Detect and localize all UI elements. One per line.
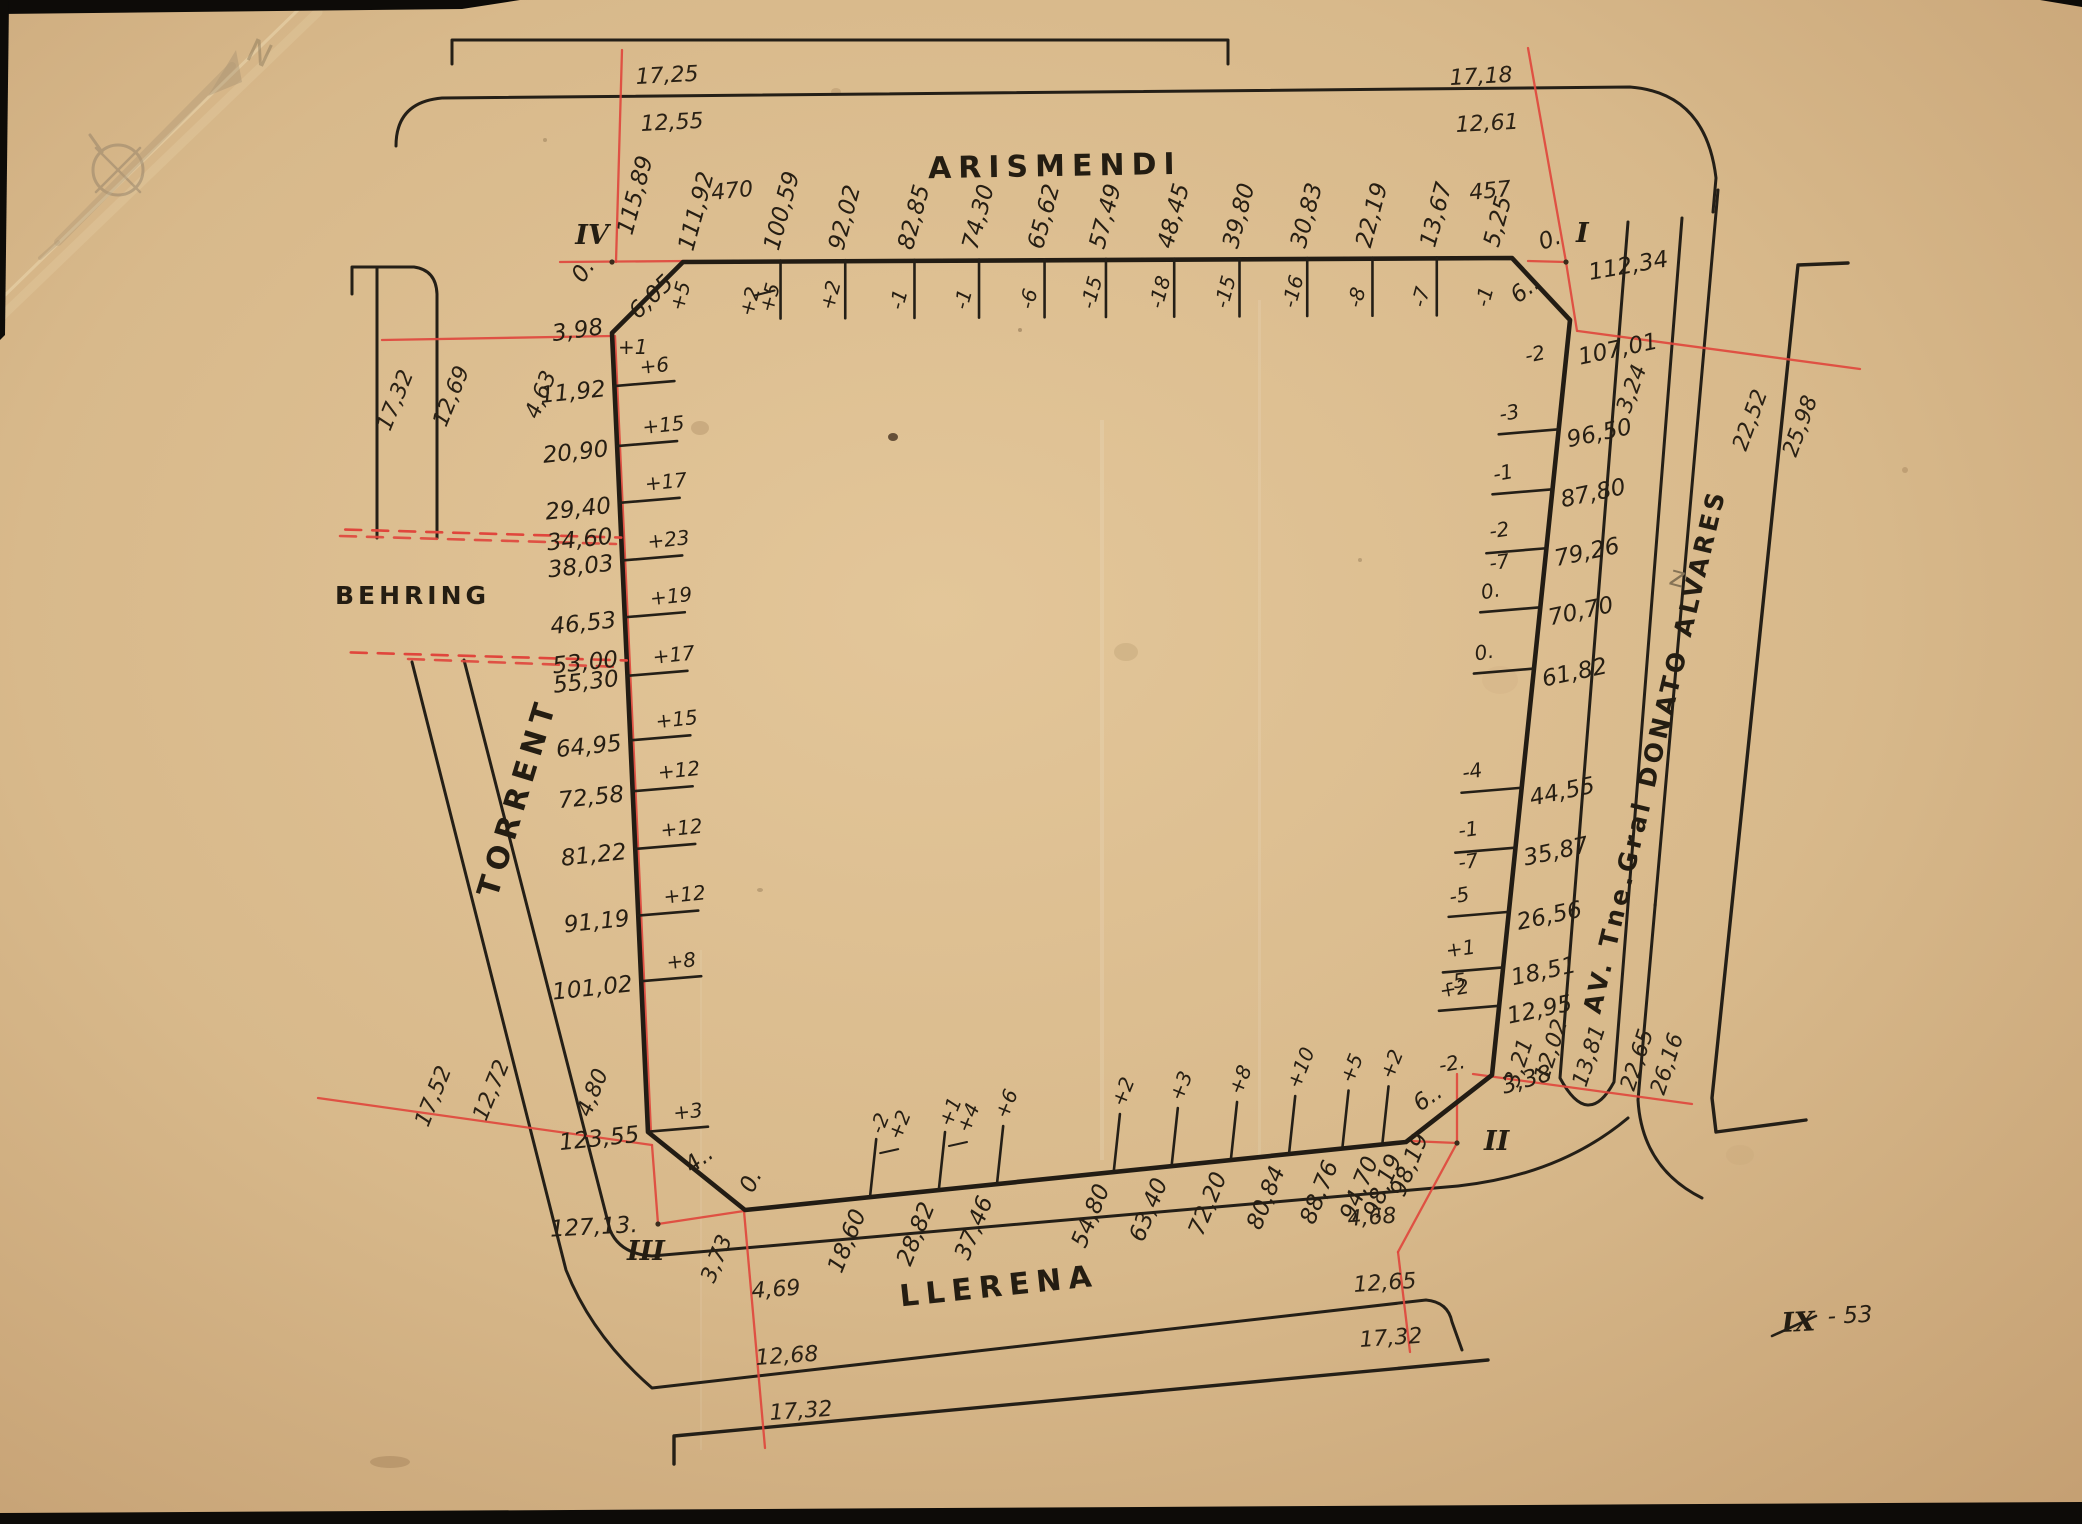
red-survey-line — [1528, 261, 1566, 262]
offset-label: +15 — [654, 705, 698, 733]
offset-label: -7 — [1488, 549, 1511, 576]
corner-point — [609, 259, 614, 264]
offset-label: -3 — [1497, 399, 1521, 426]
paper-stain — [543, 138, 547, 142]
offset-label: +23 — [646, 525, 690, 553]
offset-label: +17 — [651, 640, 696, 668]
scan-band — [1258, 300, 1261, 1160]
street-measure: 17,18 — [1449, 63, 1513, 91]
offset-label: -1 — [1457, 816, 1480, 843]
offset-label: +15 — [641, 411, 685, 439]
ink-spot — [888, 433, 898, 441]
paper-stain — [757, 888, 763, 892]
street-measure: 12,68 — [755, 1342, 820, 1371]
paper-stain — [1902, 467, 1908, 473]
scan-band — [700, 950, 702, 1450]
offset-label: +17 — [644, 467, 689, 495]
offset-label: +1 — [1444, 935, 1477, 963]
corner-point — [655, 1221, 660, 1226]
street-name-arismendi: ARISMENDI — [928, 147, 1182, 186]
street-measure: 4,68 — [1347, 1204, 1398, 1232]
offset-label: +2 — [1438, 974, 1471, 1003]
offset-label: -2 — [1488, 517, 1511, 544]
street-measure: 470 — [710, 177, 754, 206]
paper-stain — [370, 1456, 410, 1468]
offset-label: +8 — [665, 947, 697, 974]
offset-label: -1 — [1491, 459, 1515, 486]
street-measure: 12,55 — [640, 109, 704, 137]
offset-label: -7 — [1457, 848, 1480, 875]
corner-point — [1563, 259, 1568, 264]
scan-band — [1100, 420, 1104, 1160]
offset-label: +1 — [618, 335, 647, 359]
offset-label: +19 — [649, 582, 693, 610]
paper-stain — [1358, 558, 1362, 562]
offset-label: -5 — [1447, 882, 1471, 909]
corner-station: 127,13. — [549, 1212, 638, 1243]
street-measure: 12,65 — [1353, 1269, 1418, 1298]
street-measure: 17,32 — [1359, 1324, 1424, 1353]
offset-label: -4 — [1460, 758, 1484, 785]
street-name-behring: BEHRING — [335, 581, 490, 610]
street-measure: 457 — [1468, 177, 1512, 206]
offset-label: +3 — [672, 1098, 704, 1125]
street-measure: 17,32 — [769, 1397, 834, 1426]
offset-label: +12 — [657, 756, 701, 784]
corner-roman-II: II — [1483, 1126, 1511, 1157]
paper-stain — [1726, 1145, 1754, 1165]
offset-label: +12 — [662, 880, 706, 908]
scanned-survey-sheet: N111,92+5100,59+5+292,02+282,85-174,30-1… — [0, 0, 2082, 1524]
paper-stain — [691, 421, 709, 435]
corner-roman-III: III — [626, 1236, 666, 1267]
offset-label: +12 — [659, 814, 703, 842]
corner-point — [1454, 1140, 1459, 1145]
paper-stain — [1114, 643, 1138, 661]
street-measure: 4,69 — [751, 1276, 802, 1304]
corner-roman-I: I — [1575, 218, 1590, 249]
street-measure: 12,61 — [1455, 110, 1519, 138]
paper-stain — [1018, 328, 1022, 332]
street-measure: 17,25 — [635, 62, 699, 90]
plate-suffix: - 53 — [1827, 1302, 1873, 1330]
corner-roman-IV: IV — [574, 220, 612, 251]
offset-label: -2. — [1437, 1049, 1467, 1077]
survey-drawing: N111,92+5100,59+5+292,02+282,85-174,30-1… — [0, 0, 2082, 1524]
